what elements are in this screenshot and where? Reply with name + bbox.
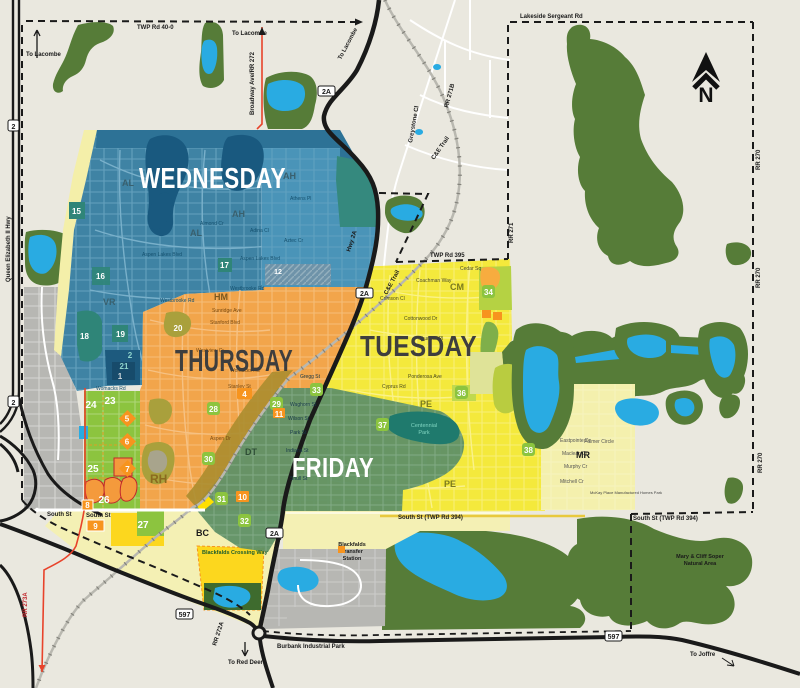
svg-text:5: 5 [125, 415, 130, 424]
svg-text:BC: BC [196, 528, 209, 538]
svg-text:South St: South St [47, 512, 72, 518]
svg-text:Athens Pl: Athens Pl [290, 196, 311, 202]
svg-text:9: 9 [93, 522, 98, 531]
svg-text:RR 270: RR 270 [758, 452, 764, 473]
svg-text:Waghorn St: Waghorn St [290, 402, 317, 408]
svg-text:16: 16 [96, 272, 105, 281]
svg-text:PE: PE [420, 399, 432, 409]
svg-text:4: 4 [242, 390, 247, 399]
svg-text:Cedar Sq: Cedar Sq [460, 266, 481, 272]
svg-text:CM: CM [450, 282, 464, 292]
svg-text:26: 26 [98, 495, 110, 506]
svg-text:Murphy Cr: Murphy Cr [564, 464, 588, 470]
svg-text:Centennial: Centennial [411, 423, 437, 429]
svg-text:Queen Elizabeth II Hwy: Queen Elizabeth II Hwy [6, 216, 12, 282]
svg-text:South St: South St [86, 513, 111, 519]
svg-text:2A: 2A [322, 89, 331, 96]
svg-text:Natural Area: Natural Area [684, 561, 717, 567]
svg-text:30: 30 [204, 455, 213, 464]
svg-text:597: 597 [608, 634, 620, 641]
svg-text:8: 8 [85, 501, 90, 510]
svg-text:Cyprus Rd: Cyprus Rd [382, 384, 406, 390]
svg-text:Park St: Park St [290, 430, 307, 436]
svg-text:N: N [698, 84, 713, 107]
svg-text:AL: AL [190, 228, 202, 238]
svg-text:RR 271: RR 271 [509, 222, 515, 243]
svg-text:TUESDAY: TUESDAY [360, 331, 477, 363]
svg-text:TWP Rd 40-0: TWP Rd 40-0 [137, 25, 174, 31]
svg-text:FRIDAY: FRIDAY [292, 452, 374, 483]
svg-text:2: 2 [12, 124, 16, 131]
svg-text:15: 15 [72, 207, 81, 216]
svg-text:2A: 2A [270, 531, 279, 538]
svg-text:34: 34 [484, 288, 493, 297]
svg-text:RR 270: RR 270 [756, 149, 762, 170]
svg-text:RH: RH [150, 472, 167, 486]
svg-text:To Lacombe: To Lacombe [232, 31, 268, 37]
svg-text:23: 23 [104, 396, 116, 407]
svg-text:25: 25 [87, 464, 99, 475]
svg-text:McKay Place Manufactured Homes: McKay Place Manufactured Homes Park [590, 490, 662, 495]
svg-text:Aspen Lakes Blvd: Aspen Lakes Blvd [240, 256, 280, 262]
svg-text:597: 597 [179, 612, 191, 619]
svg-text:DT: DT [245, 447, 257, 457]
svg-text:33: 33 [312, 386, 321, 395]
svg-text:18: 18 [80, 332, 89, 341]
svg-text:RR 270: RR 270 [756, 267, 762, 288]
svg-text:6: 6 [125, 438, 130, 447]
svg-text:To Joffre: To Joffre [690, 652, 716, 658]
svg-text:Crimson Cl: Crimson Cl [380, 296, 405, 302]
svg-text:Cottonwood Dr: Cottonwood Dr [404, 316, 438, 322]
svg-text:Lakeside Sergeant Rd: Lakeside Sergeant Rd [520, 14, 583, 20]
svg-text:VR: VR [103, 297, 116, 307]
svg-text:MR: MR [576, 450, 590, 460]
svg-text:Park: Park [418, 430, 430, 436]
svg-text:RR 273A: RR 273A [23, 592, 29, 617]
svg-text:To Red Deer: To Red Deer [228, 660, 264, 666]
svg-text:7: 7 [125, 465, 130, 474]
svg-text:PE: PE [444, 479, 456, 489]
svg-text:THURSDAY: THURSDAY [175, 343, 293, 378]
svg-text:17: 17 [220, 261, 229, 270]
svg-text:2A: 2A [360, 291, 369, 298]
svg-text:10: 10 [238, 493, 247, 502]
svg-text:Broadway Ave/RR 272: Broadway Ave/RR 272 [250, 51, 256, 115]
svg-text:1: 1 [118, 372, 123, 381]
svg-text:Sunridge Ave: Sunridge Ave [212, 308, 242, 314]
svg-text:2: 2 [128, 351, 133, 360]
svg-text:Ponderosa Ave: Ponderosa Ave [408, 374, 442, 380]
svg-text:Aspen Lakes Blvd: Aspen Lakes Blvd [142, 252, 182, 258]
svg-text:TWP Rd 395: TWP Rd 395 [430, 253, 465, 259]
svg-text:21: 21 [120, 362, 129, 371]
svg-text:28: 28 [209, 405, 218, 414]
svg-text:Blackfalds Crossing Way: Blackfalds Crossing Way [202, 550, 268, 556]
svg-text:Adina Cl: Adina Cl [250, 228, 269, 234]
svg-text:Aspen Dr: Aspen Dr [210, 436, 231, 442]
svg-text:36: 36 [457, 389, 466, 398]
svg-text:Westbrooke Rd: Westbrooke Rd [230, 286, 265, 292]
svg-text:11: 11 [275, 410, 284, 419]
svg-text:Coachman Way: Coachman Way [416, 278, 452, 284]
svg-text:WEDNESDAY: WEDNESDAY [139, 163, 286, 195]
svg-text:Stanford Blvd: Stanford Blvd [210, 320, 240, 326]
svg-text:To Lacombe: To Lacombe [26, 52, 62, 58]
svg-text:Gregg St: Gregg St [300, 374, 321, 380]
svg-text:AH: AH [283, 171, 296, 181]
svg-text:27: 27 [137, 520, 149, 531]
svg-text:37: 37 [378, 421, 387, 430]
svg-text:24: 24 [85, 400, 97, 411]
svg-text:AH: AH [232, 209, 245, 219]
svg-text:HM: HM [214, 292, 228, 302]
svg-text:Mary & Cliff Soper: Mary & Cliff Soper [676, 554, 725, 560]
svg-text:19: 19 [116, 330, 125, 339]
svg-text:Westbrooke Rd: Westbrooke Rd [160, 298, 195, 304]
svg-text:South St (TWP Rd 394): South St (TWP Rd 394) [398, 515, 463, 521]
svg-text:20: 20 [174, 324, 183, 333]
svg-text:29: 29 [272, 400, 281, 409]
svg-text:Palmer Circle: Palmer Circle [584, 439, 614, 445]
svg-text:Burbank Industrial Park: Burbank Industrial Park [277, 644, 345, 650]
svg-text:31: 31 [217, 495, 226, 504]
svg-text:38: 38 [524, 446, 533, 455]
svg-text:Station: Station [343, 556, 362, 562]
svg-text:Almond Cr: Almond Cr [200, 221, 224, 227]
svg-text:Mitchell Cr: Mitchell Cr [560, 479, 584, 485]
svg-text:12: 12 [274, 269, 282, 276]
svg-text:South St (TWP Rd 394): South St (TWP Rd 394) [633, 516, 698, 522]
svg-text:AL: AL [122, 178, 134, 188]
svg-text:Wilson St: Wilson St [288, 416, 310, 422]
svg-text:2: 2 [12, 400, 16, 407]
svg-text:Womacks Rd: Womacks Rd [96, 386, 126, 392]
svg-text:32: 32 [240, 517, 249, 526]
svg-text:Aztec Cr: Aztec Cr [284, 238, 304, 244]
